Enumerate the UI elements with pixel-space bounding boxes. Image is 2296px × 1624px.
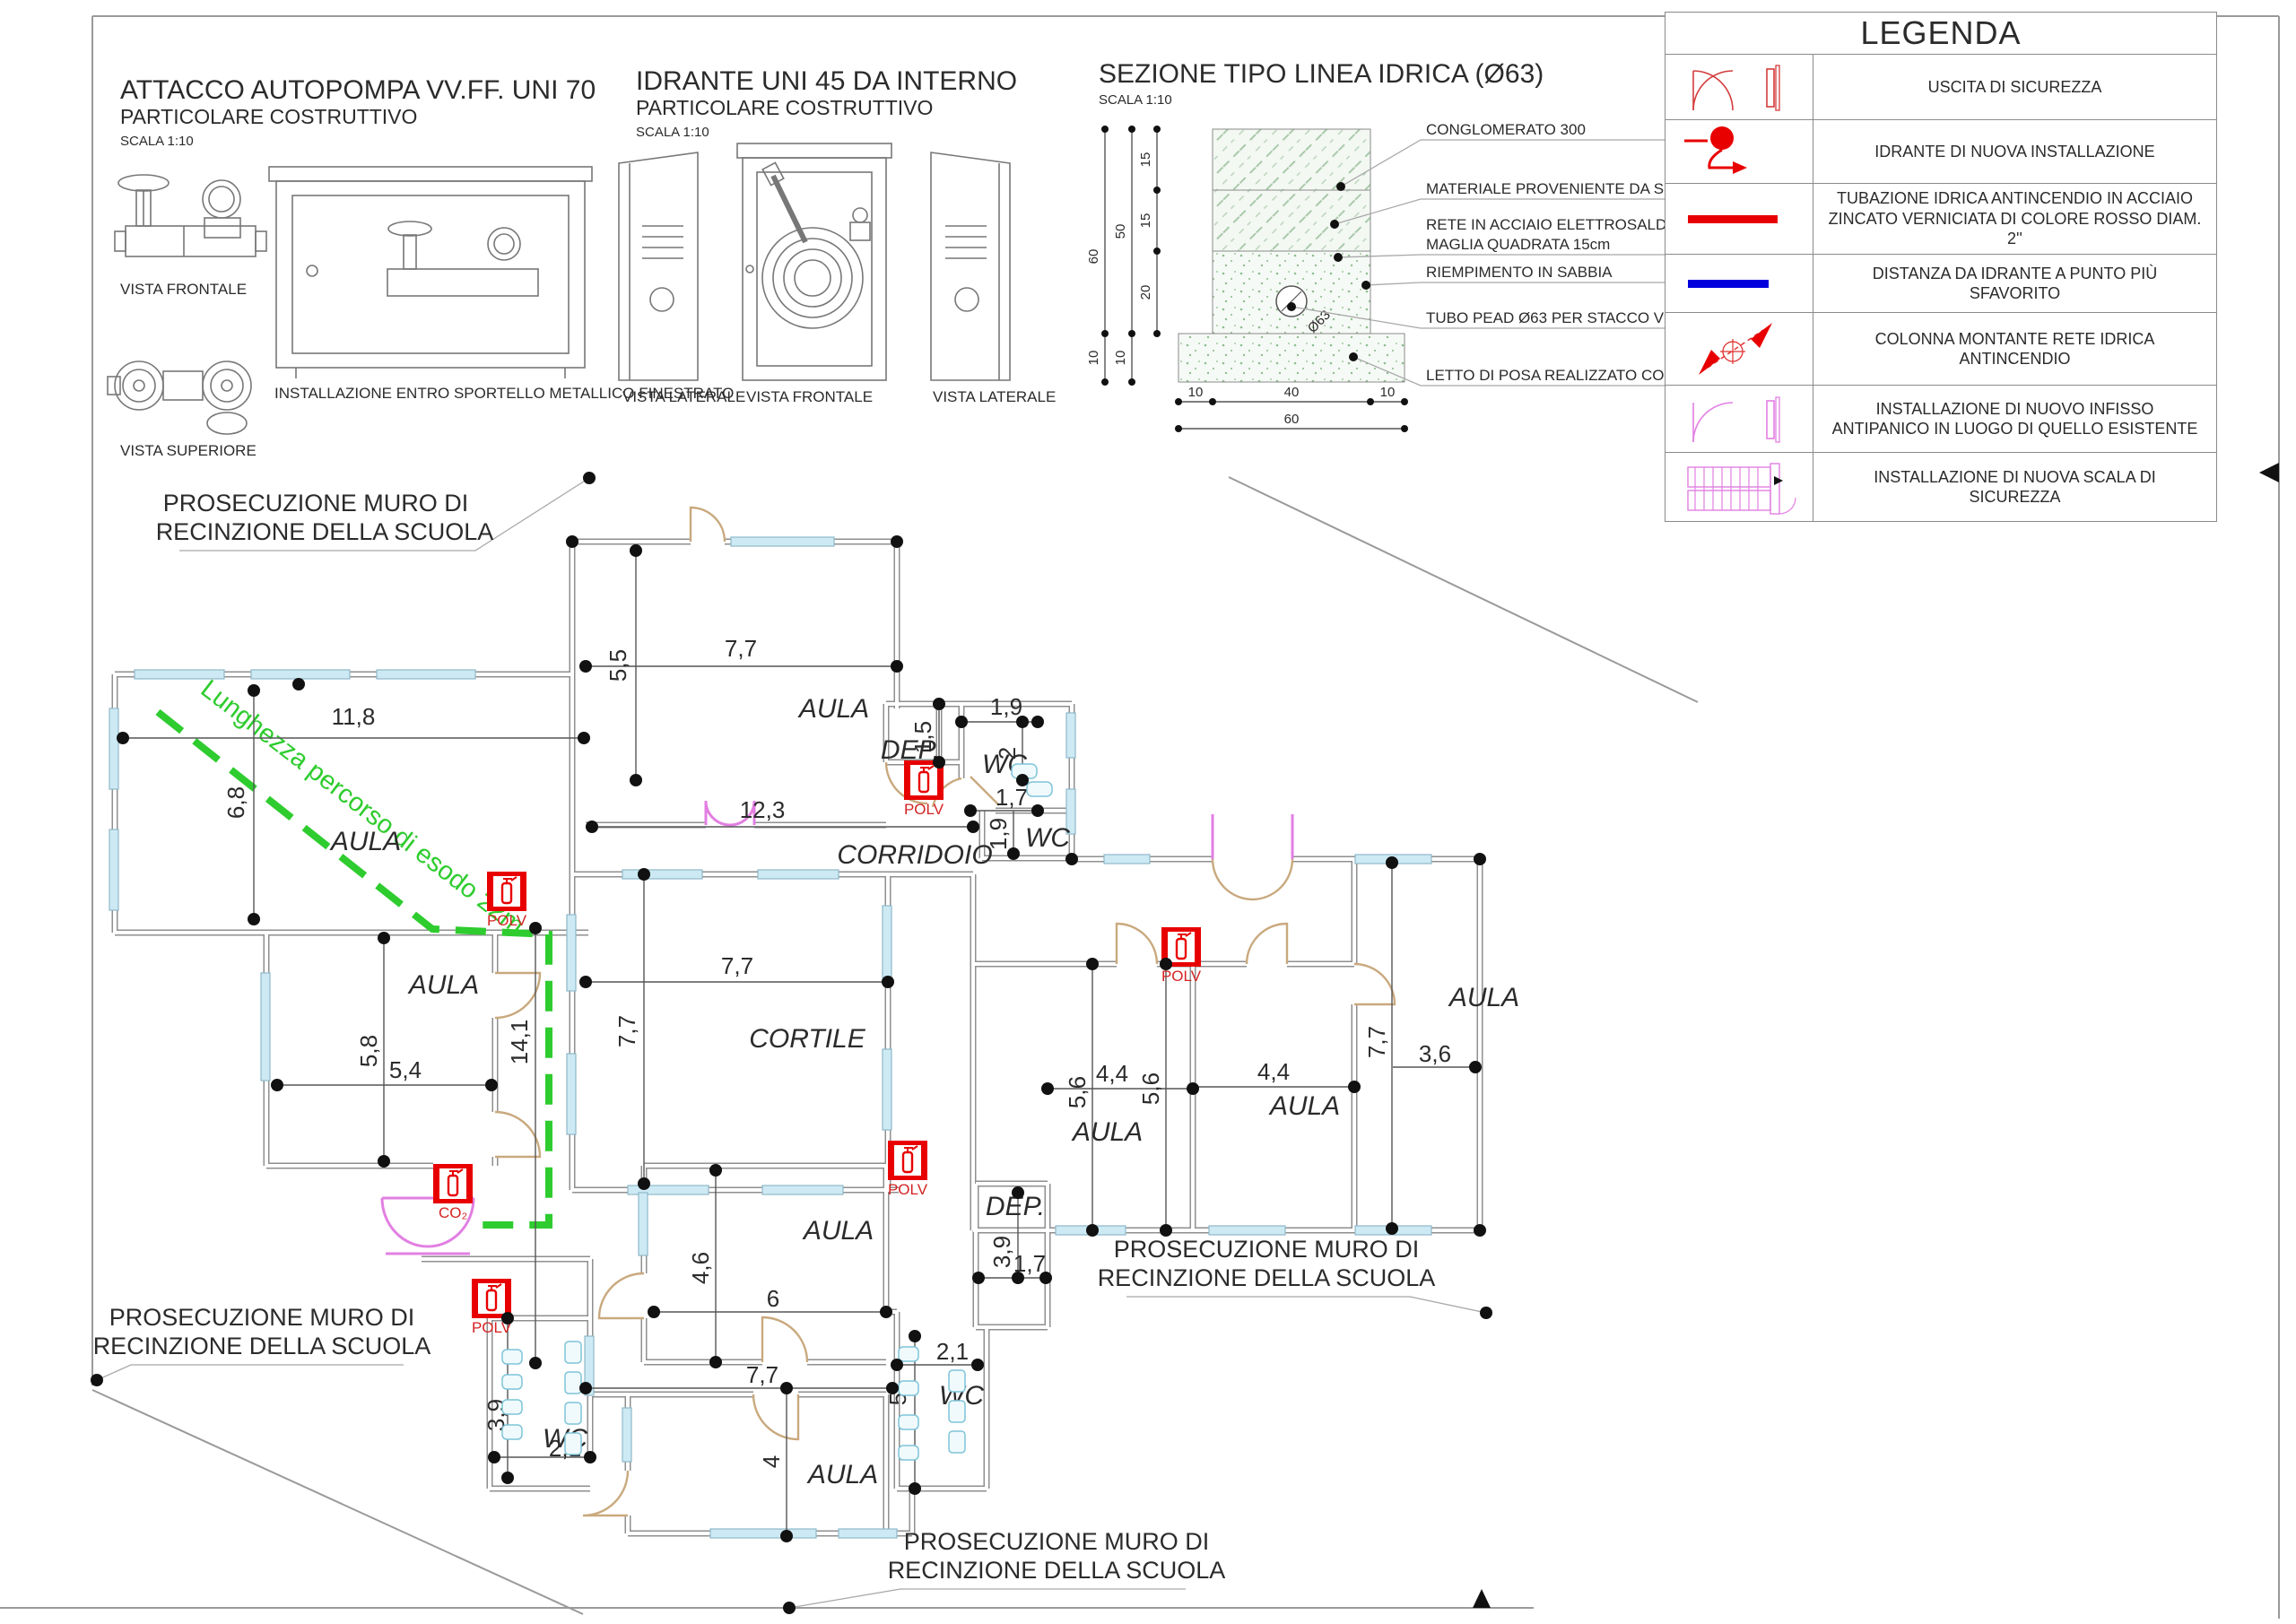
hydrant-icon (1665, 120, 1813, 183)
svg-text:MAGLIA QUADRATA 15cm: MAGLIA QUADRATA 15cm (1426, 236, 1610, 253)
svg-text:PROSECUZIONE MURO DI: PROSECUZIONE MURO DI (904, 1528, 1210, 1555)
svg-text:CONGLOMERATO 300: CONGLOMERATO 300 (1426, 121, 1586, 138)
svg-text:7,7: 7,7 (613, 1015, 640, 1047)
room-aula: AULA (329, 827, 401, 856)
svg-text:2,1: 2,1 (936, 1338, 969, 1365)
legend-row: COLONNA MONTANTE RETE IDRICA ANTINCENDIO (1665, 313, 2216, 386)
room-cortile: CORTILE (749, 1024, 865, 1054)
svg-text:4,4: 4,4 (1257, 1058, 1290, 1085)
attacco-subtitle: PARTICOLARE COSTRUTTIVO (120, 105, 417, 128)
attacco-scale: SCALA 1:10 (120, 134, 194, 149)
idrante-view-left1-label: VISTA LATERALE (622, 388, 745, 405)
svg-text:12,3: 12,3 (740, 796, 786, 823)
svg-text:20: 20 (1138, 285, 1153, 300)
svg-text:6: 6 (767, 1285, 779, 1312)
blue-distance-line-icon (1665, 255, 1813, 312)
room-wc: WC (1025, 823, 1070, 853)
stairs-icon (1665, 453, 1813, 521)
svg-text:POLV: POLV (888, 1181, 928, 1198)
sezione-trench-drawing: Ø63 (1178, 129, 1405, 382)
svg-text:RIEMPIMENTO IN SABBIA: RIEMPIMENTO IN SABBIA (1426, 264, 1613, 281)
svg-text:60: 60 (1284, 412, 1300, 427)
attacco-view-top-label: VISTA SUPERIORE (120, 442, 257, 459)
sezione-title: SEZIONE TIPO LINEA IDRICA (Ø63) (1099, 59, 1544, 89)
detail-idrante-uni45: IDRANTE UNI 45 DA INTERNO PARTICOLARE CO… (619, 66, 1056, 405)
svg-text:PROSECUZIONE MURO DI: PROSECUZIONE MURO DI (163, 490, 469, 517)
svg-text:7,7: 7,7 (1363, 1026, 1390, 1058)
idrante-front-view-drawing (737, 143, 891, 380)
svg-text:5,6: 5,6 (1137, 1073, 1164, 1105)
svg-text:POLV: POLV (1161, 968, 1202, 985)
svg-text:POLV: POLV (904, 801, 944, 818)
svg-text:5,5: 5,5 (604, 649, 631, 682)
extinguisher-co2: CO₂ (433, 1164, 473, 1221)
extinguisher-polv: POLV (472, 1279, 512, 1336)
svg-text:40: 40 (1284, 385, 1300, 400)
attacco-cabinet-drawing (269, 167, 592, 378)
svg-text:5,6: 5,6 (1064, 1076, 1091, 1108)
svg-text:6,8: 6,8 (222, 786, 249, 819)
svg-text:10: 10 (1086, 351, 1101, 366)
svg-text:10: 10 (1188, 385, 1204, 400)
room-aula: AULA (1268, 1091, 1340, 1121)
idrante-scale: SCALA 1:10 (636, 125, 709, 140)
extinguisher-polv: POLV (487, 872, 527, 929)
attacco-top-view-drawing (108, 361, 251, 434)
legend-row: INSTALLAZIONE DI NUOVO INFISSO ANTIPANIC… (1665, 386, 2216, 453)
idrante-title: IDRANTE UNI 45 DA INTERNO (636, 66, 1017, 96)
sezione-scale: SCALA 1:10 (1099, 92, 1172, 108)
svg-text:7,7: 7,7 (721, 952, 753, 979)
svg-text:5,4: 5,4 (389, 1056, 422, 1083)
svg-text:50: 50 (1113, 224, 1128, 239)
svg-text:3,6: 3,6 (1419, 1040, 1451, 1067)
svg-text:RECINZIONE DELLA SCUOLA: RECINZIONE DELLA SCUOLA (93, 1333, 431, 1359)
exit-door-icon (1665, 55, 1813, 119)
svg-text:RECINZIONE DELLA SCUOLA: RECINZIONE DELLA SCUOLA (1098, 1264, 1436, 1291)
legend-row: INSTALLAZIONE DI NUOVA SCALA DI SICUREZZ… (1665, 453, 2216, 521)
svg-text:RECINZIONE DELLA SCUOLA: RECINZIONE DELLA SCUOLA (888, 1557, 1226, 1584)
legend-title: LEGENDA (1665, 13, 2216, 55)
room-aula: AULA (1448, 983, 1519, 1012)
svg-text:10: 10 (1113, 351, 1128, 366)
room-corridoio: CORRIDOIO (837, 840, 992, 870)
room-aula: AULA (797, 694, 869, 724)
extinguisher-polv: POLV (904, 760, 944, 818)
svg-text:RECINZIONE DELLA SCUOLA: RECINZIONE DELLA SCUOLA (156, 518, 494, 545)
svg-text:5,8: 5,8 (355, 1035, 382, 1067)
legend-row: IDRANTE DI NUOVA INSTALLAZIONE (1665, 120, 2216, 184)
idrante-subtitle: PARTICOLARE COSTRUTTIVO (636, 96, 933, 119)
svg-text:4,4: 4,4 (1096, 1060, 1128, 1087)
extinguisher-polv: POLV (1161, 927, 1202, 985)
svg-text:PROSECUZIONE MURO DI: PROSECUZIONE MURO DI (109, 1304, 415, 1331)
svg-text:1,9: 1,9 (990, 693, 1022, 720)
panic-door-icon (1665, 386, 1813, 452)
legend-row: TUBAZIONE IDRICA ANTINCENDIO IN ACCIAIO … (1665, 184, 2216, 255)
svg-text:15: 15 (1138, 152, 1153, 168)
svg-text:3,9: 3,9 (988, 1236, 1015, 1268)
idrante-view-left2-label: VISTA LATERALE (933, 388, 1056, 405)
svg-text:11,8: 11,8 (332, 703, 376, 730)
svg-text:14,1: 14,1 (506, 1020, 533, 1065)
svg-text:4,6: 4,6 (687, 1252, 714, 1284)
idrante-view-front-label: VISTA FRONTALE (746, 388, 873, 405)
idrante-side-view-2-drawing (931, 152, 1010, 380)
svg-text:4: 4 (758, 1455, 785, 1468)
svg-text:1,7: 1,7 (996, 784, 1028, 811)
drawing-sheet: ATTACCO AUTOPOMPA VV.FF. UNI 70 PARTICOL… (0, 0, 2296, 1624)
attacco-front-view-drawing (115, 175, 266, 256)
room-aula: AULA (407, 970, 479, 1000)
matchline-arrow-up-icon (1473, 1589, 1491, 1608)
svg-text:PROSECUZIONE MURO DI: PROSECUZIONE MURO DI (1114, 1236, 1420, 1263)
riser-column-icon (1665, 313, 1813, 385)
room-aula: AULA (802, 1216, 874, 1246)
attacco-title: ATTACCO AUTOPOMPA VV.FF. UNI 70 (120, 75, 596, 105)
idrante-side-view-1-drawing (619, 152, 698, 380)
legend-row: DISTANZA DA IDRANTE A PUNTO PIÙ SFAVORIT… (1665, 255, 2216, 313)
svg-text:7,7: 7,7 (725, 635, 757, 662)
room-aula: AULA (806, 1460, 878, 1489)
attacco-view-front-label: VISTA FRONTALE (120, 281, 247, 298)
svg-text:10: 10 (1380, 385, 1396, 400)
room-aula: AULA (1071, 1117, 1143, 1147)
legend: LEGENDA USCITA DI SICUREZZA IDRANTE DI N… (1665, 12, 2217, 522)
extinguisher-polv: POLV (888, 1141, 928, 1198)
svg-text:7,7: 7,7 (746, 1361, 778, 1388)
red-pipe-line-icon (1665, 184, 1813, 254)
legend-row: USCITA DI SICUREZZA (1665, 55, 2216, 120)
svg-text:CO₂: CO₂ (439, 1204, 467, 1221)
svg-text:POLV: POLV (487, 912, 527, 929)
svg-text:60: 60 (1086, 249, 1101, 265)
matchline-arrow-left-icon (2259, 463, 2279, 482)
svg-text:15: 15 (1138, 213, 1153, 229)
